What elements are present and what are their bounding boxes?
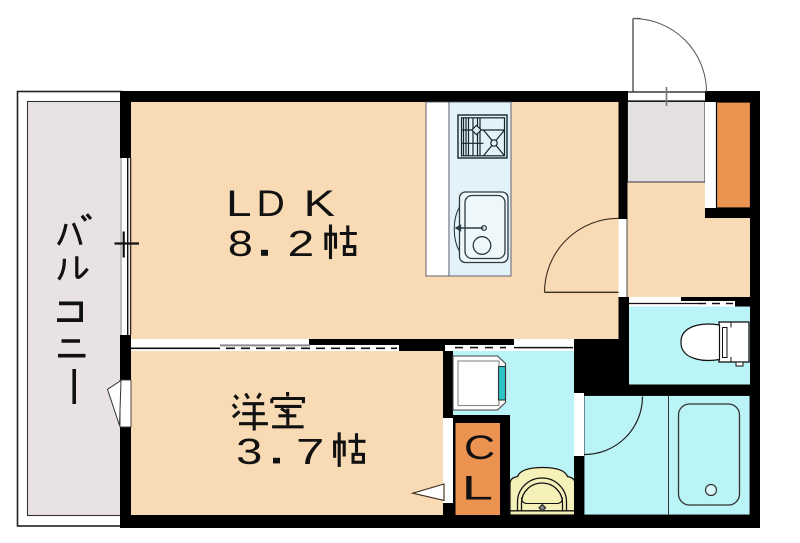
- svg-text:7: 7: [296, 431, 324, 472]
- svg-text:L: L: [462, 470, 493, 508]
- svg-text:8: 8: [228, 223, 253, 264]
- svg-text:2: 2: [288, 223, 315, 264]
- svg-text:C: C: [464, 429, 495, 467]
- svg-text:L: L: [226, 183, 251, 224]
- svg-text:3: 3: [236, 431, 262, 472]
- svg-text:K: K: [304, 183, 336, 224]
- svg-text:D: D: [257, 183, 285, 224]
